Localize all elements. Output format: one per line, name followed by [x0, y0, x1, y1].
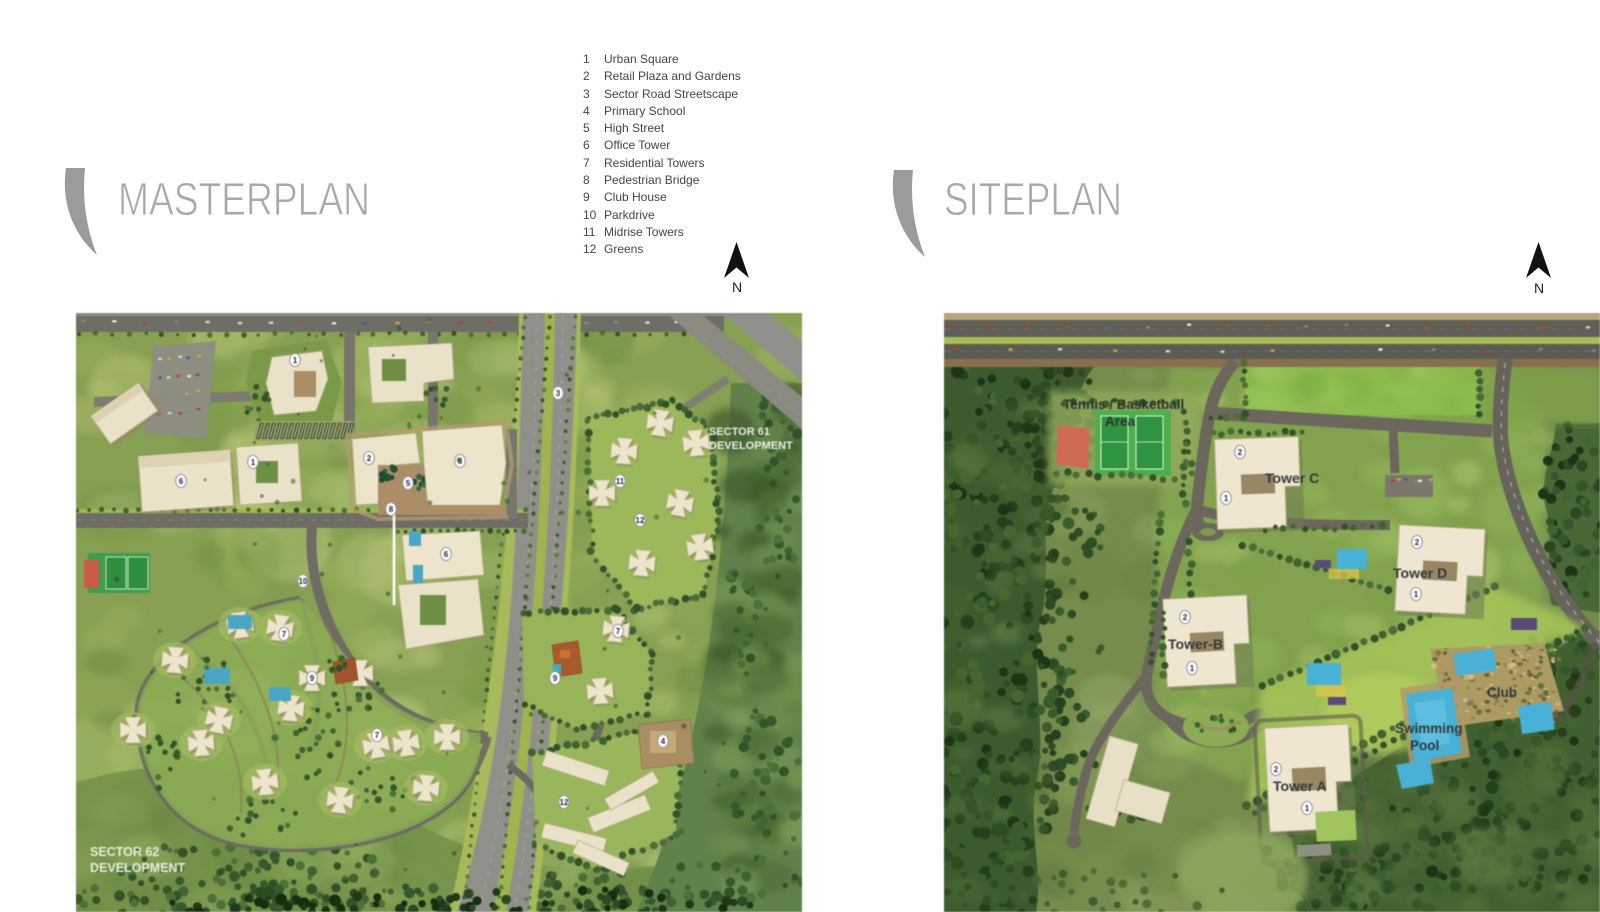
svg-text:Tower-B: Tower-B: [1168, 636, 1223, 652]
svg-text:9: 9: [553, 674, 558, 683]
svg-text:1: 1: [1190, 664, 1195, 673]
svg-text:N: N: [732, 279, 742, 295]
svg-text:8: 8: [389, 505, 394, 514]
svg-text:7: 7: [616, 627, 621, 636]
svg-text:MASTERPLAN: MASTERPLAN: [118, 173, 370, 225]
svg-text:2: 2: [1274, 765, 1279, 774]
svg-text:1: 1: [251, 458, 256, 467]
svg-text:4: 4: [661, 737, 666, 746]
svg-text:Swimming: Swimming: [1395, 721, 1463, 736]
svg-text:12: 12: [636, 516, 645, 525]
svg-text:1: 1: [1224, 494, 1229, 503]
svg-text:5: 5: [406, 479, 411, 488]
svg-text:2: 2: [1238, 448, 1243, 457]
svg-text:SITEPLAN: SITEPLAN: [944, 173, 1122, 225]
svg-text:Tower D: Tower D: [1393, 565, 1447, 581]
svg-text:9: 9: [310, 674, 315, 683]
svg-text:2: 2: [367, 454, 372, 463]
svg-text:Tower C: Tower C: [1265, 470, 1319, 486]
svg-text:1: 1: [293, 356, 298, 365]
svg-text:Pool: Pool: [1410, 738, 1439, 753]
svg-text:7: 7: [375, 731, 380, 740]
svg-text:10: 10: [299, 577, 308, 586]
svg-text:6: 6: [179, 477, 184, 486]
svg-text:Club: Club: [1487, 685, 1517, 700]
svg-text:2: 2: [1415, 538, 1420, 547]
svg-text:11: 11: [616, 477, 625, 486]
svg-text:SECTOR 61: SECTOR 61: [709, 426, 770, 438]
svg-text:Tower A: Tower A: [1273, 778, 1327, 794]
svg-text:DEVELOPMENT: DEVELOPMENT: [709, 440, 793, 452]
svg-text:1: 1: [1414, 590, 1419, 599]
svg-text:7: 7: [282, 630, 287, 639]
svg-text:Tennis / Basketball: Tennis / Basketball: [1063, 397, 1184, 412]
svg-text:3: 3: [556, 389, 561, 398]
svg-text:DEVELOPMENT: DEVELOPMENT: [90, 861, 186, 875]
svg-text:12: 12: [560, 798, 569, 807]
svg-text:SECTOR 62: SECTOR 62: [90, 845, 159, 859]
svg-text:Area: Area: [1105, 414, 1136, 429]
svg-text:1: 1: [1305, 804, 1310, 813]
svg-text:2: 2: [1183, 613, 1188, 622]
svg-text:6: 6: [444, 550, 449, 559]
svg-text:N: N: [1534, 280, 1544, 296]
